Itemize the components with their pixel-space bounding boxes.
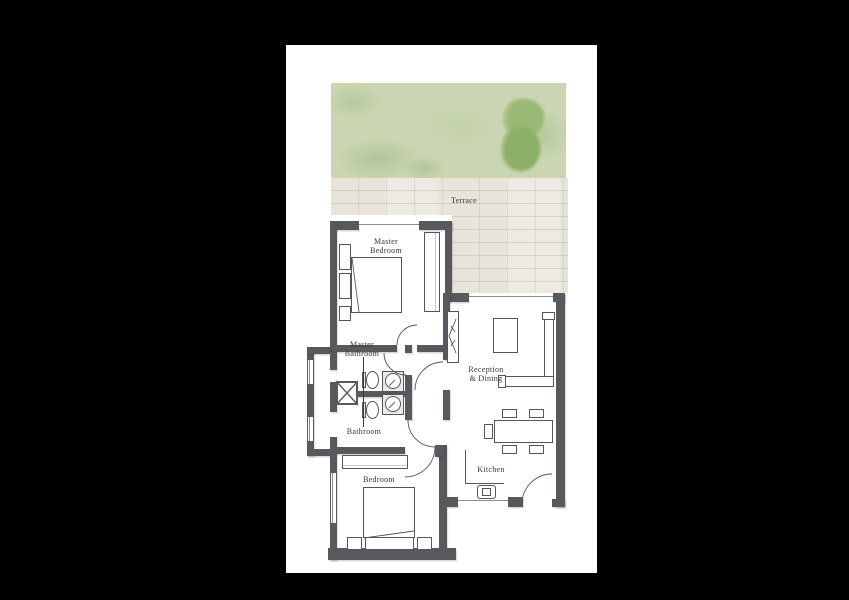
label-line: Reception xyxy=(468,365,503,374)
label-line: Master xyxy=(374,237,398,246)
door-arc xyxy=(522,474,552,504)
tv-icon xyxy=(449,319,456,353)
basin-tap-line xyxy=(389,380,395,408)
room-label-bedroom: Bedroom xyxy=(354,476,404,485)
door-arc xyxy=(405,447,435,477)
room-label-bathroom: Bathroom xyxy=(336,428,392,437)
room-label-reception-dining: Reception & Dining xyxy=(456,366,516,384)
doors-and-detail-lines xyxy=(286,45,597,573)
label-line: Bathroom xyxy=(345,349,379,358)
screenshot-root: { "document": { "kind": "apartment-floor… xyxy=(0,0,849,600)
room-label-master-bedroom: Master Bedroom xyxy=(356,238,416,256)
door-arc xyxy=(408,420,435,447)
room-label-kitchen: Kitchen xyxy=(466,466,516,475)
room-label-master-bathroom: Master Bathroom xyxy=(334,341,390,359)
plan-sheet: Terrace xyxy=(286,45,597,573)
door-arc xyxy=(415,362,443,390)
label-line: & Dining xyxy=(470,374,503,383)
bed-blanket-line xyxy=(364,531,414,538)
door-arc xyxy=(397,325,417,345)
label-line: Master xyxy=(350,340,374,349)
shaft-x xyxy=(336,381,358,405)
bed-blanket-line xyxy=(352,258,359,312)
label-line: Bedroom xyxy=(370,246,402,255)
